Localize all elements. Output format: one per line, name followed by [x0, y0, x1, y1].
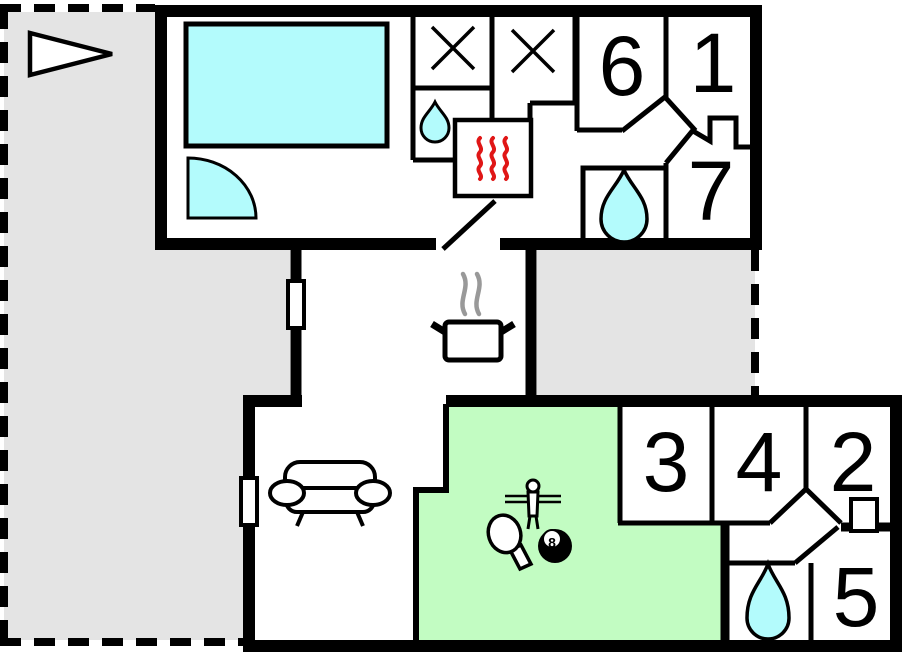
shower-droplet-icon [601, 170, 647, 242]
cooking-pot-icon [432, 274, 514, 360]
room-7-label: 7 [688, 144, 735, 238]
floor-plan: 8 1234567 [0, 0, 908, 652]
corner-bath-icon [188, 158, 256, 218]
window [241, 478, 257, 525]
sauna-heater-icon [455, 120, 531, 196]
sofa-icon [270, 462, 390, 526]
billiard-ball-number: 8 [548, 535, 556, 551]
room-6-label: 6 [599, 19, 646, 113]
room-1-label: 1 [690, 16, 737, 110]
room-4-label: 4 [736, 415, 783, 509]
pool-icon [186, 24, 387, 146]
bath-droplet-icon [747, 564, 789, 639]
room-3-label: 3 [643, 415, 690, 509]
billiard-8-ball-icon: 8 [538, 529, 572, 563]
washbasin-droplet-icon [421, 102, 449, 142]
hob-burner-icon [432, 27, 474, 69]
hob-burner-icon [512, 30, 554, 72]
window [288, 281, 304, 328]
room-2-label: 2 [830, 415, 877, 509]
terrace-middle [537, 250, 755, 395]
room-5-label: 5 [833, 550, 880, 644]
